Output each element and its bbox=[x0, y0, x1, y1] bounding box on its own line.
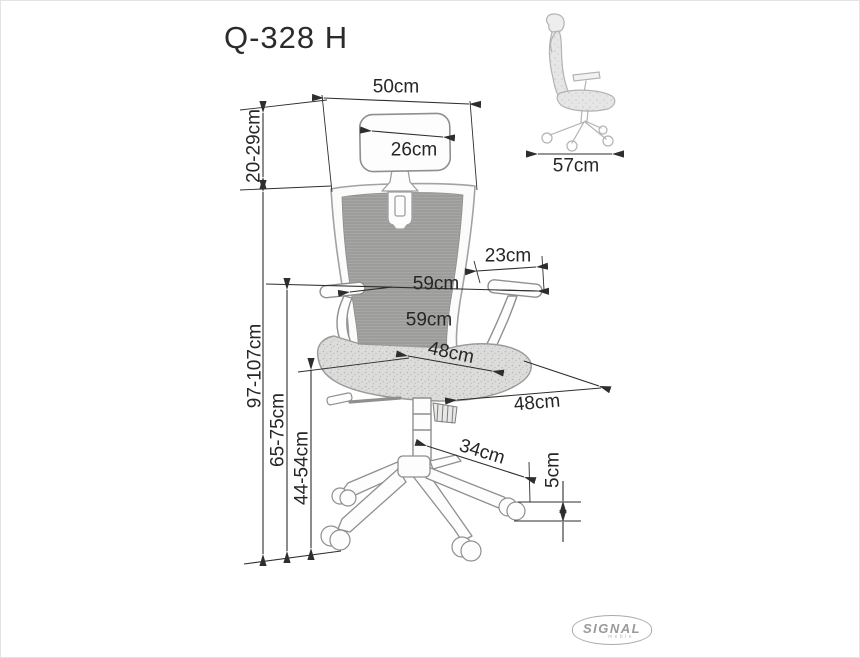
brand-sub: meble bbox=[608, 635, 634, 640]
dim-label-headrest-width: 26cm bbox=[391, 141, 437, 160]
brand-name: SIGNAL bbox=[583, 622, 641, 635]
adjustment-knob bbox=[433, 403, 457, 423]
dim-label-seat-height-range: 44-54cm bbox=[293, 431, 312, 505]
base-legs bbox=[338, 455, 512, 541]
dim-label-backrest-width: 50cm bbox=[373, 78, 419, 97]
headrest-stem bbox=[382, 170, 418, 191]
dim-label-headrest-height-range: 20-29cm bbox=[245, 109, 264, 183]
dim-label-armrest-height-range: 65-75cm bbox=[269, 393, 288, 467]
technical-drawing-sheet: Q-328 H 50cm 26cm 20-29cm 23cm 59cm 59cm… bbox=[0, 0, 860, 658]
dim-line-armrest-pad bbox=[477, 267, 536, 271]
gas-lift bbox=[413, 398, 431, 462]
side-view-chair bbox=[542, 14, 615, 151]
dim-label-backrest-lower-width: 59cm bbox=[406, 311, 452, 330]
ground-line bbox=[244, 551, 341, 564]
dim-label-seat-depth: 48cm bbox=[513, 392, 561, 415]
dim-label-width-across-armrests: 59cm bbox=[413, 275, 459, 294]
dim-line-backrest-width bbox=[324, 98, 469, 104]
headrest-bracket bbox=[388, 192, 412, 229]
dim-label-armrest-pad-length: 23cm bbox=[485, 247, 531, 266]
dim-label-overall-depth: 57cm bbox=[553, 157, 599, 176]
brand-logo: SIGNAL meble bbox=[572, 615, 652, 645]
page-title: Q-328 H bbox=[224, 20, 348, 56]
dim-label-caster-height: 5cm bbox=[544, 452, 563, 488]
dim-label-total-height-range: 97-107cm bbox=[246, 324, 265, 409]
